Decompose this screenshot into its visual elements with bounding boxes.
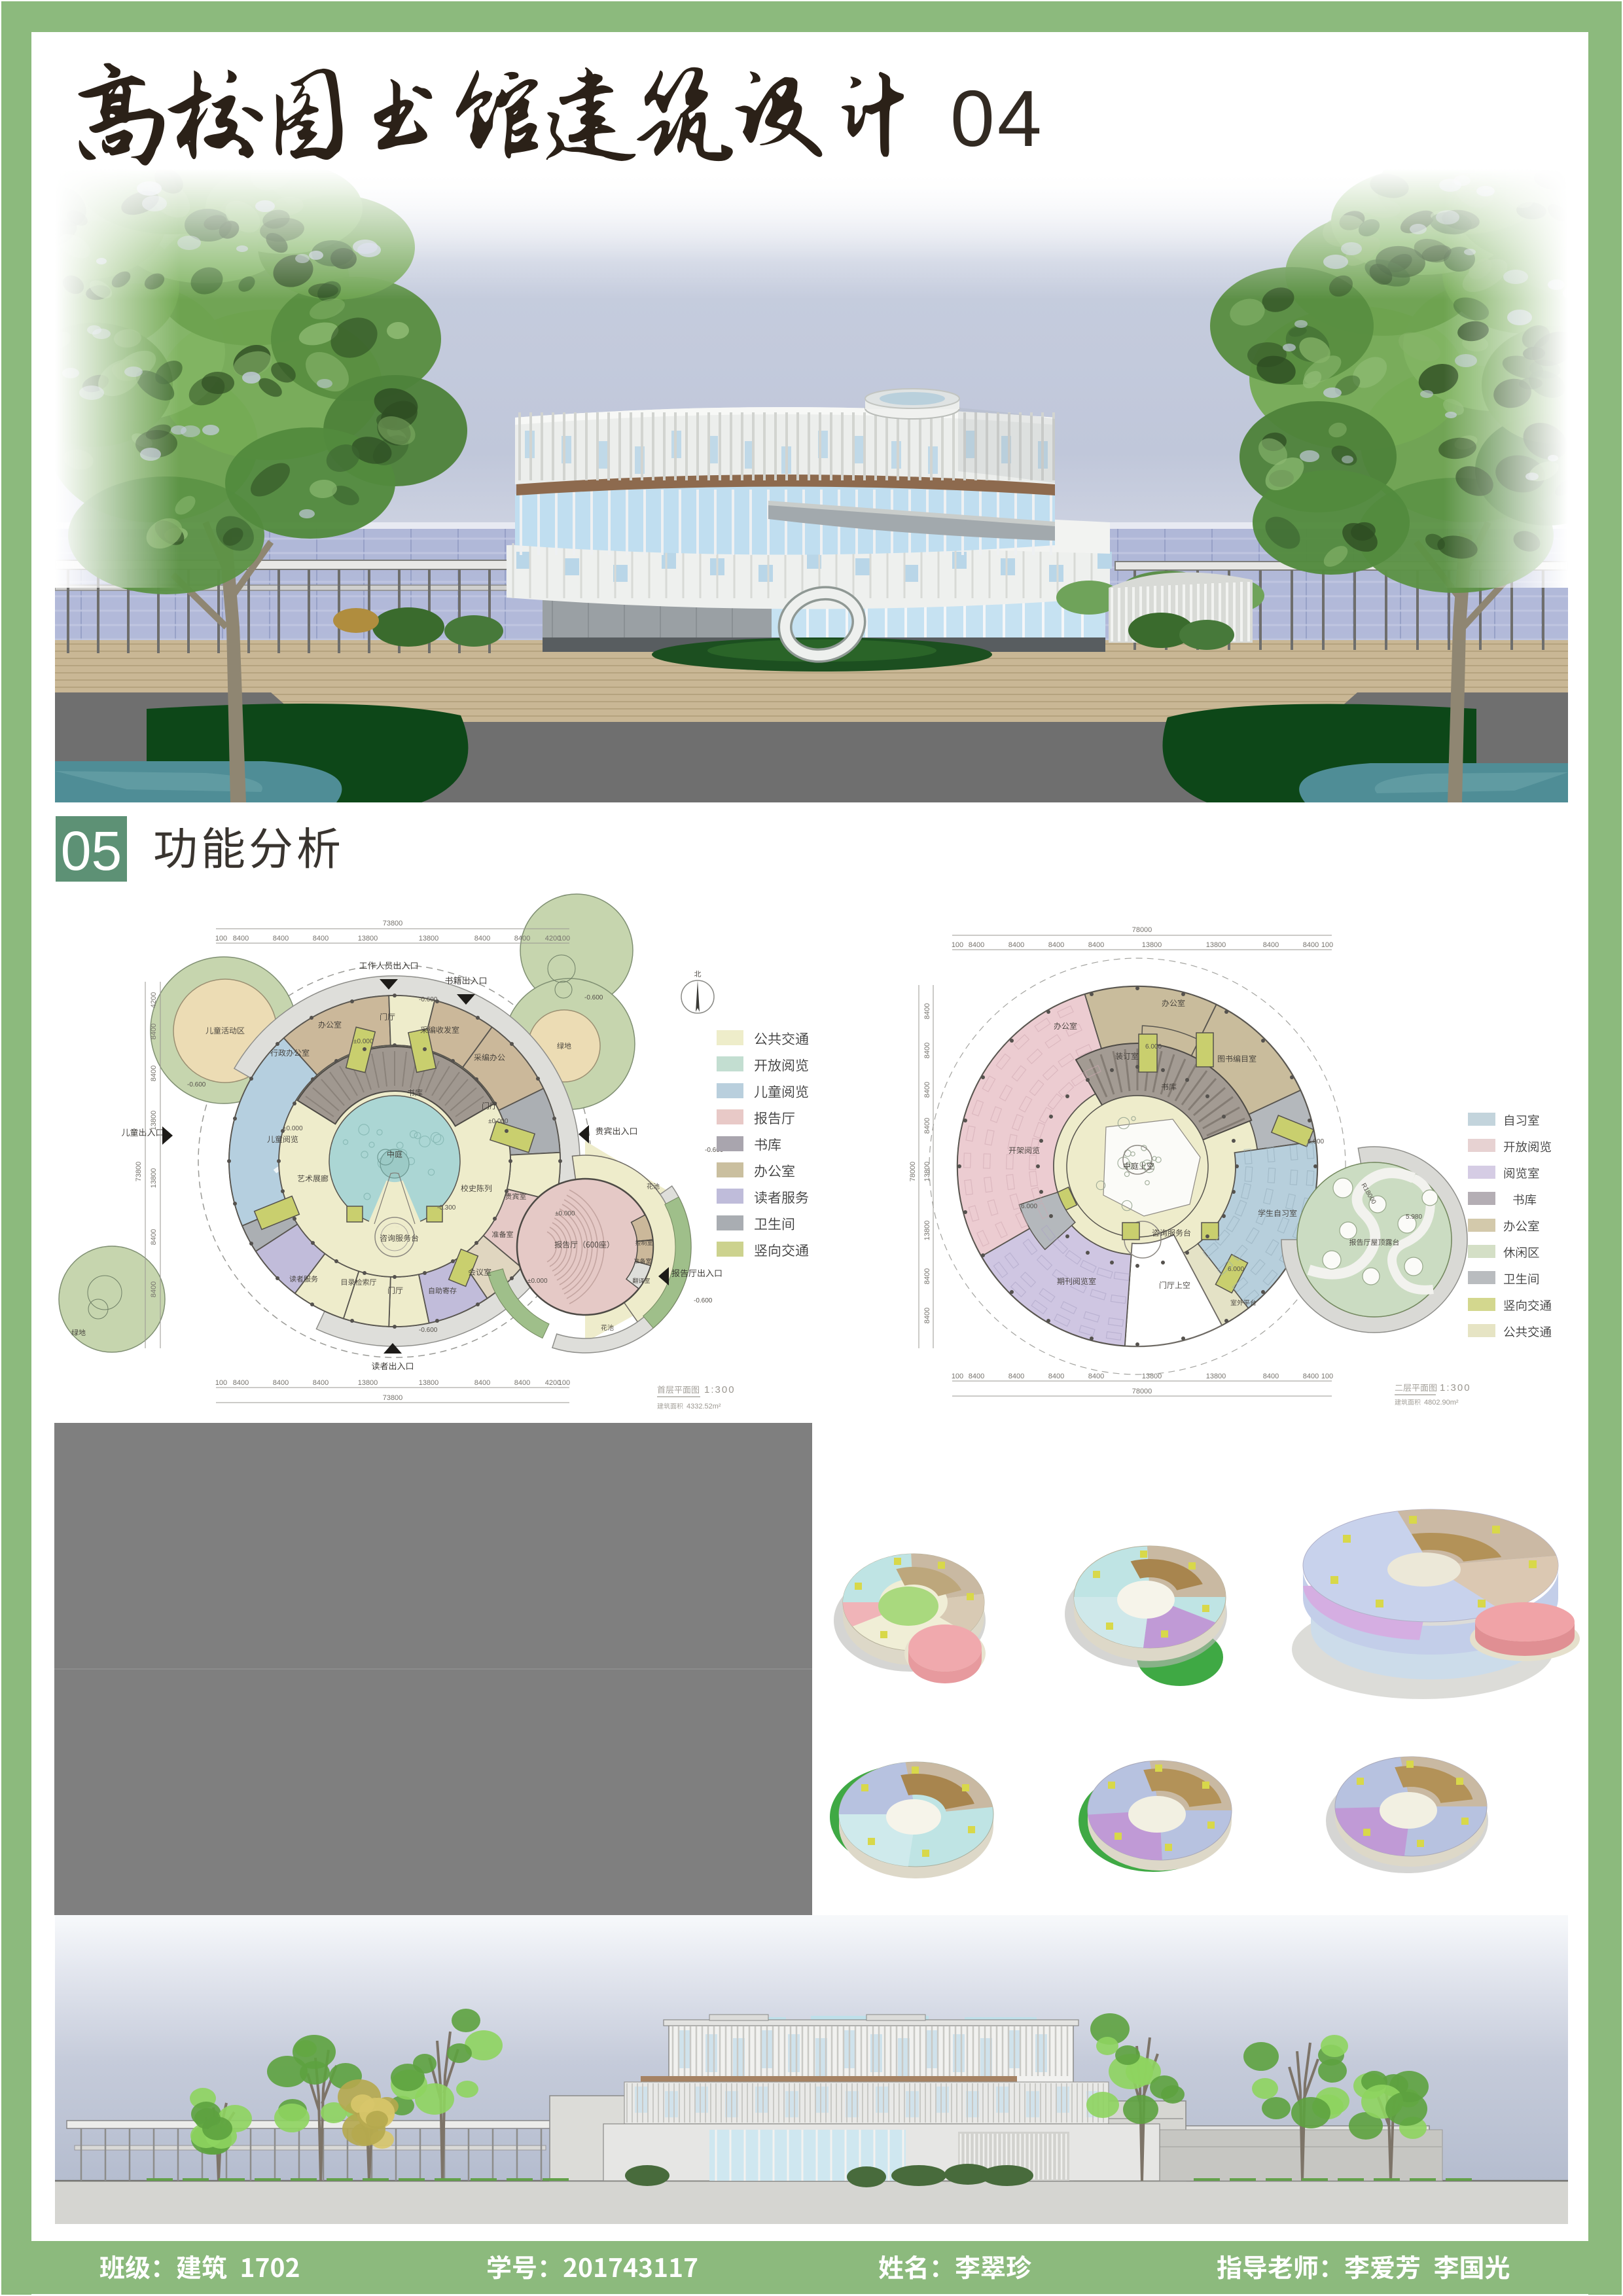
svg-text:±0.000: ±0.000: [488, 1118, 508, 1125]
svg-text:6.000: 6.000: [1145, 1043, 1162, 1050]
svg-text:05: 05: [61, 820, 122, 882]
svg-text:8400: 8400: [313, 1379, 329, 1387]
svg-text:8400: 8400: [150, 1282, 158, 1297]
svg-text:8400: 8400: [1048, 941, 1064, 949]
svg-text:73800: 73800: [135, 1162, 143, 1182]
svg-text:13800: 13800: [1142, 941, 1162, 949]
svg-text:8400: 8400: [969, 941, 984, 949]
svg-text:±0.000: ±0.000: [283, 1125, 303, 1132]
svg-text:100: 100: [952, 941, 963, 949]
svg-text:100: 100: [1321, 941, 1333, 949]
svg-text:13800: 13800: [1206, 1372, 1226, 1380]
svg-text:8400: 8400: [1088, 1372, 1104, 1380]
svg-text:73800: 73800: [383, 920, 403, 927]
svg-text:8400: 8400: [923, 1268, 931, 1284]
svg-text:4200: 4200: [150, 992, 158, 1008]
svg-text:100: 100: [558, 935, 570, 942]
svg-text:8400: 8400: [923, 1043, 931, 1058]
svg-text:1:300: 1:300: [1440, 1382, 1471, 1393]
svg-text:8400: 8400: [273, 935, 289, 942]
svg-text:8400: 8400: [273, 1379, 289, 1387]
svg-text:8400: 8400: [514, 935, 530, 942]
svg-text:8400: 8400: [514, 1379, 530, 1387]
svg-text:13800: 13800: [358, 935, 378, 942]
svg-text:8400: 8400: [1008, 1372, 1024, 1380]
svg-text:±0.000: ±0.000: [555, 1210, 575, 1217]
svg-text:±0.000: ±0.000: [527, 1278, 548, 1285]
svg-text:8400: 8400: [150, 1024, 158, 1039]
svg-text:5.980: 5.980: [1406, 1213, 1422, 1221]
svg-text:8400: 8400: [923, 1003, 931, 1019]
svg-text:13800: 13800: [150, 1168, 158, 1189]
svg-text:8400: 8400: [1303, 1372, 1319, 1380]
svg-text:8400: 8400: [233, 1379, 249, 1387]
svg-text:8400: 8400: [150, 1066, 158, 1081]
svg-text:6.000: 6.000: [1021, 1203, 1037, 1210]
svg-text:1:300: 1:300: [704, 1384, 736, 1395]
svg-text:-0.600: -0.600: [694, 1297, 713, 1304]
svg-text:8400: 8400: [150, 1229, 158, 1245]
svg-text:13800: 13800: [1206, 941, 1226, 949]
svg-text:6.000: 6.000: [1228, 1266, 1244, 1273]
svg-text:73800: 73800: [383, 1394, 403, 1402]
svg-text:8400: 8400: [233, 935, 249, 942]
svg-text:8400: 8400: [1088, 941, 1104, 949]
svg-text:100: 100: [952, 1372, 963, 1380]
svg-text:100: 100: [215, 935, 227, 942]
svg-text:78000: 78000: [1132, 1388, 1152, 1395]
svg-text:8400: 8400: [474, 935, 490, 942]
svg-text:-0.300: -0.300: [437, 1204, 456, 1211]
svg-text:8400: 8400: [1263, 1372, 1279, 1380]
svg-text:100: 100: [558, 1379, 570, 1387]
svg-text:6.000: 6.000: [1308, 1138, 1324, 1145]
svg-text:-0.600: -0.600: [187, 1081, 206, 1088]
svg-text:8400: 8400: [923, 1118, 931, 1134]
svg-text:04: 04: [950, 74, 1044, 163]
svg-text:8400: 8400: [1263, 941, 1279, 949]
svg-text:4802.90m²: 4802.90m²: [1424, 1399, 1459, 1407]
svg-text:8400: 8400: [313, 935, 329, 942]
svg-text:-0.600: -0.600: [419, 1327, 438, 1334]
svg-text:78000: 78000: [909, 1162, 917, 1182]
svg-text:8400: 8400: [474, 1379, 490, 1387]
svg-text:8400: 8400: [923, 1082, 931, 1098]
svg-text:100: 100: [1321, 1372, 1333, 1380]
svg-text:13800: 13800: [923, 1162, 931, 1182]
svg-text:13800: 13800: [150, 1111, 158, 1131]
svg-text:8400: 8400: [1303, 941, 1319, 949]
svg-text:100: 100: [215, 1379, 227, 1387]
svg-text:-0.600: -0.600: [584, 994, 603, 1001]
svg-text:8400: 8400: [1008, 941, 1024, 949]
svg-text:4332.52m²: 4332.52m²: [687, 1403, 721, 1410]
svg-text:13800: 13800: [419, 935, 439, 942]
svg-text:±0.000: ±0.000: [353, 1038, 374, 1045]
svg-text:13800: 13800: [1142, 1372, 1162, 1380]
svg-text:8400: 8400: [923, 1308, 931, 1323]
svg-text:8400: 8400: [969, 1372, 984, 1380]
svg-text:13800: 13800: [923, 1221, 931, 1241]
svg-text:78000: 78000: [1132, 926, 1152, 934]
svg-text:13800: 13800: [358, 1379, 378, 1387]
svg-text:8400: 8400: [1048, 1372, 1064, 1380]
svg-text:-0.600: -0.600: [419, 996, 438, 1003]
svg-text:13800: 13800: [419, 1379, 439, 1387]
